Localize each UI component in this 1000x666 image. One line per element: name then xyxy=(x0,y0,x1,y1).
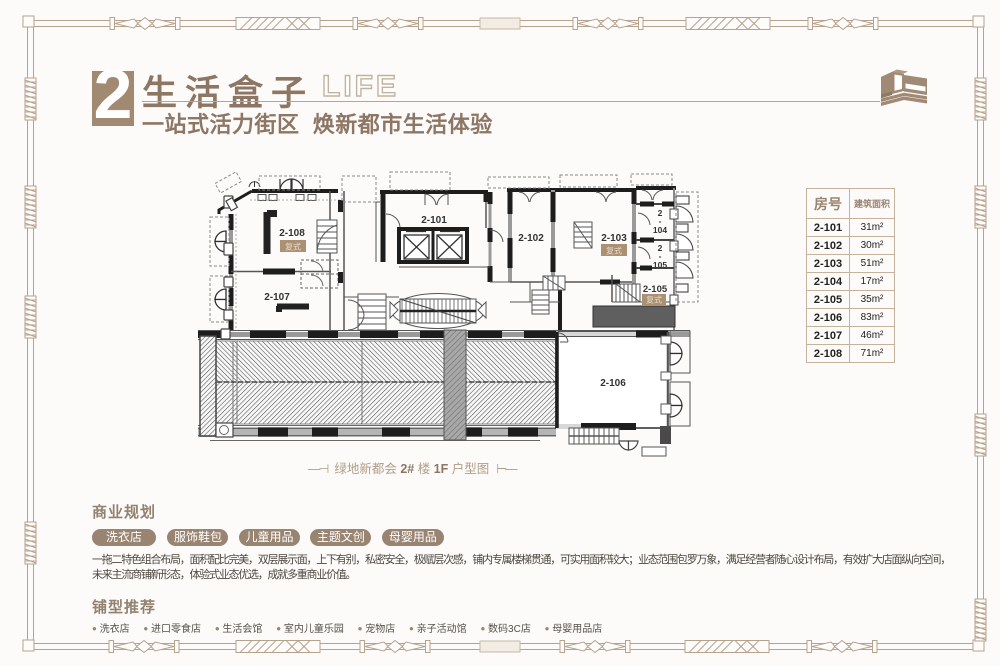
svg-text:105: 105 xyxy=(653,260,667,270)
svg-text:2-103: 2-103 xyxy=(601,233,627,244)
svg-text:2-102: 2-102 xyxy=(518,233,544,244)
svg-text:复式: 复式 xyxy=(285,242,301,252)
svg-text:2-107: 2-107 xyxy=(264,292,290,303)
svg-text:104: 104 xyxy=(653,225,667,235)
svg-text:2-108: 2-108 xyxy=(279,228,305,239)
svg-text:2-105: 2-105 xyxy=(643,284,668,295)
svg-text:复式: 复式 xyxy=(606,246,622,256)
svg-text:2-101: 2-101 xyxy=(421,215,447,226)
svg-text:2-106: 2-106 xyxy=(600,378,626,389)
svg-text:复式: 复式 xyxy=(646,295,662,305)
